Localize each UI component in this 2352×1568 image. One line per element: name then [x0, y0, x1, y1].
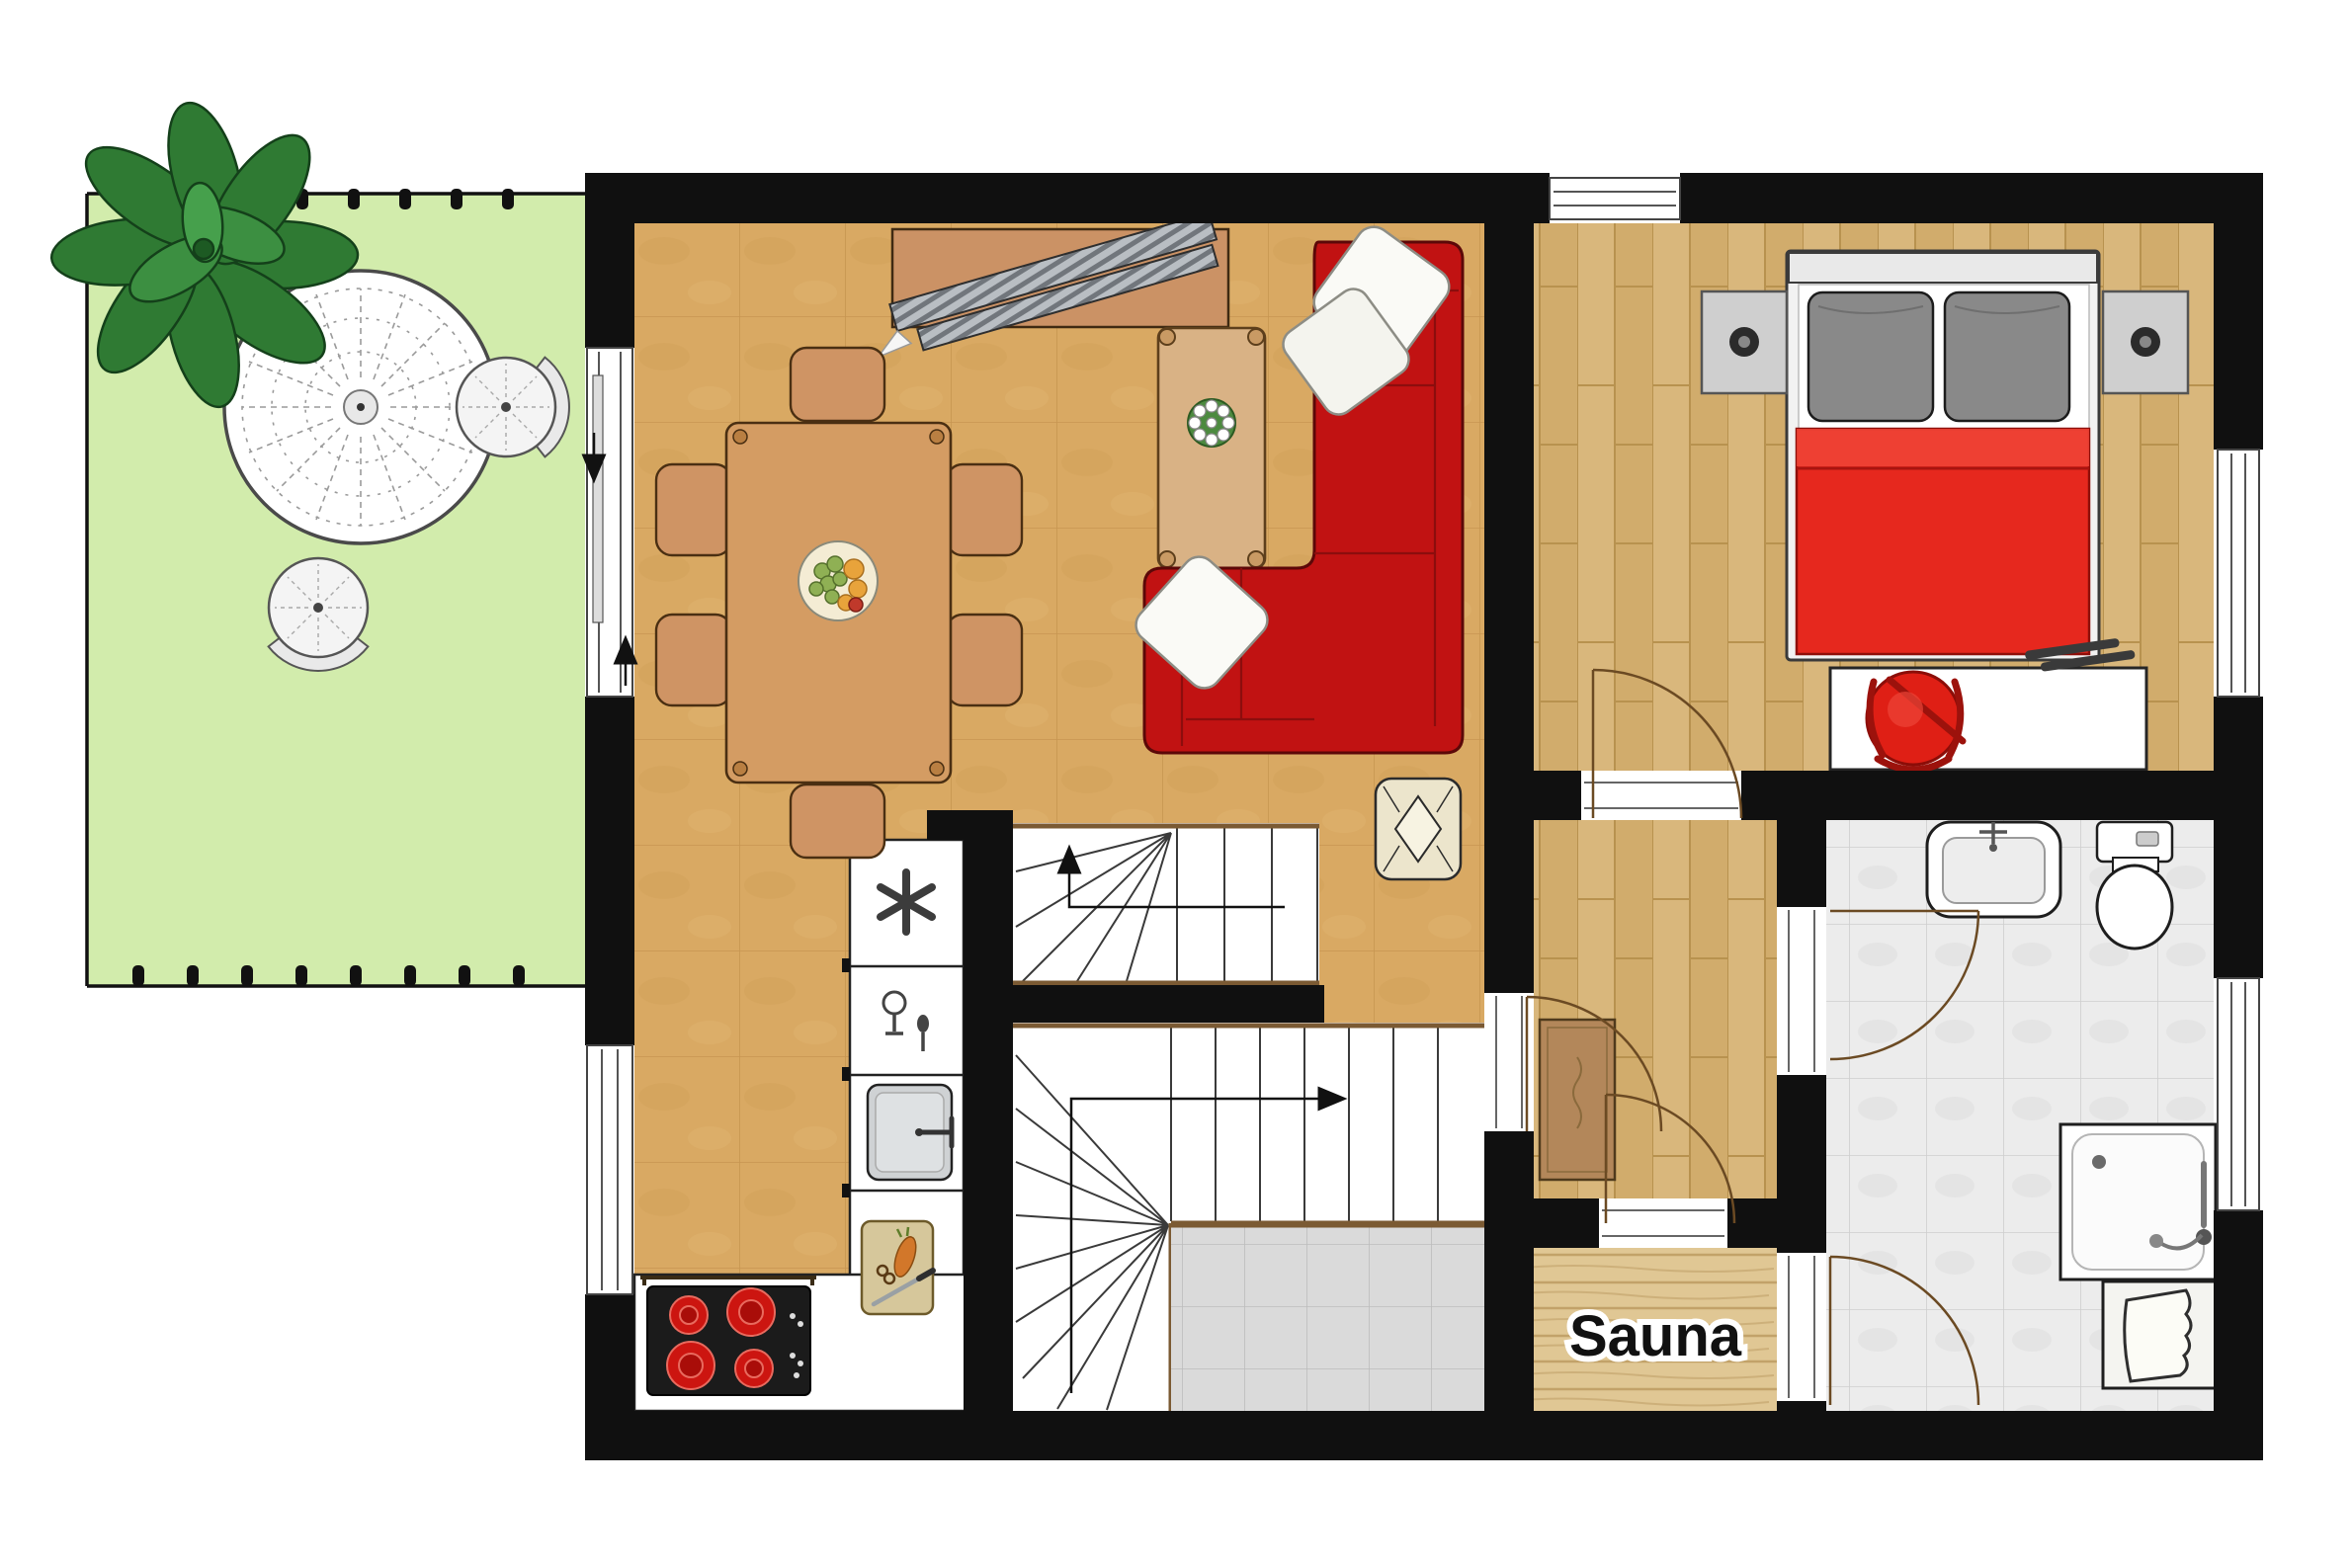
terrace — [48, 95, 585, 986]
dining-chair — [791, 348, 884, 421]
washbasin-icon — [1927, 822, 2060, 917]
window — [587, 1045, 632, 1294]
staircase-upper — [1013, 823, 1319, 985]
dining-chair — [656, 464, 731, 555]
door-sill — [1599, 1198, 1727, 1248]
stove — [640, 1278, 816, 1395]
door-sill — [1777, 1253, 1826, 1401]
toilet-icon — [2097, 822, 2172, 949]
nightstand — [2103, 291, 2188, 393]
sauna-label: Sauna — [1569, 1304, 1742, 1368]
window — [2218, 450, 2259, 697]
kitchen-sink — [868, 1085, 952, 1180]
shower-icon — [2060, 1124, 2216, 1279]
patio-chair-right — [457, 358, 569, 457]
dining-chair — [947, 464, 1022, 555]
cutting-board-icon — [862, 1221, 933, 1314]
stair-landing — [1171, 1225, 1484, 1411]
window — [1550, 178, 1680, 219]
sliding-door — [587, 348, 632, 697]
nightstand — [1702, 291, 1787, 393]
flower-centerpiece-icon — [1188, 399, 1235, 447]
doormat-icon — [1540, 1020, 1615, 1180]
dining-chair — [656, 615, 731, 705]
desk-chair — [1867, 672, 1963, 770]
dining-chair — [791, 784, 884, 858]
kitchen-counter-column — [842, 840, 964, 1277]
fruit-bowl-icon — [798, 541, 878, 620]
bed-pillow — [1808, 292, 1933, 421]
door-sill — [1581, 771, 1741, 820]
floor-cushion — [1376, 779, 1461, 879]
floor-plan: Sauna — [0, 0, 2352, 1568]
coffee-table — [1158, 328, 1265, 568]
window — [2218, 978, 2259, 1210]
dining-chair — [947, 615, 1022, 705]
patio-chair-bottom — [269, 558, 369, 671]
door-sill — [1777, 907, 1826, 1075]
bed-pillow — [1945, 292, 2069, 421]
laundry-basket-icon — [2103, 1281, 2216, 1388]
bed — [1787, 251, 2099, 660]
